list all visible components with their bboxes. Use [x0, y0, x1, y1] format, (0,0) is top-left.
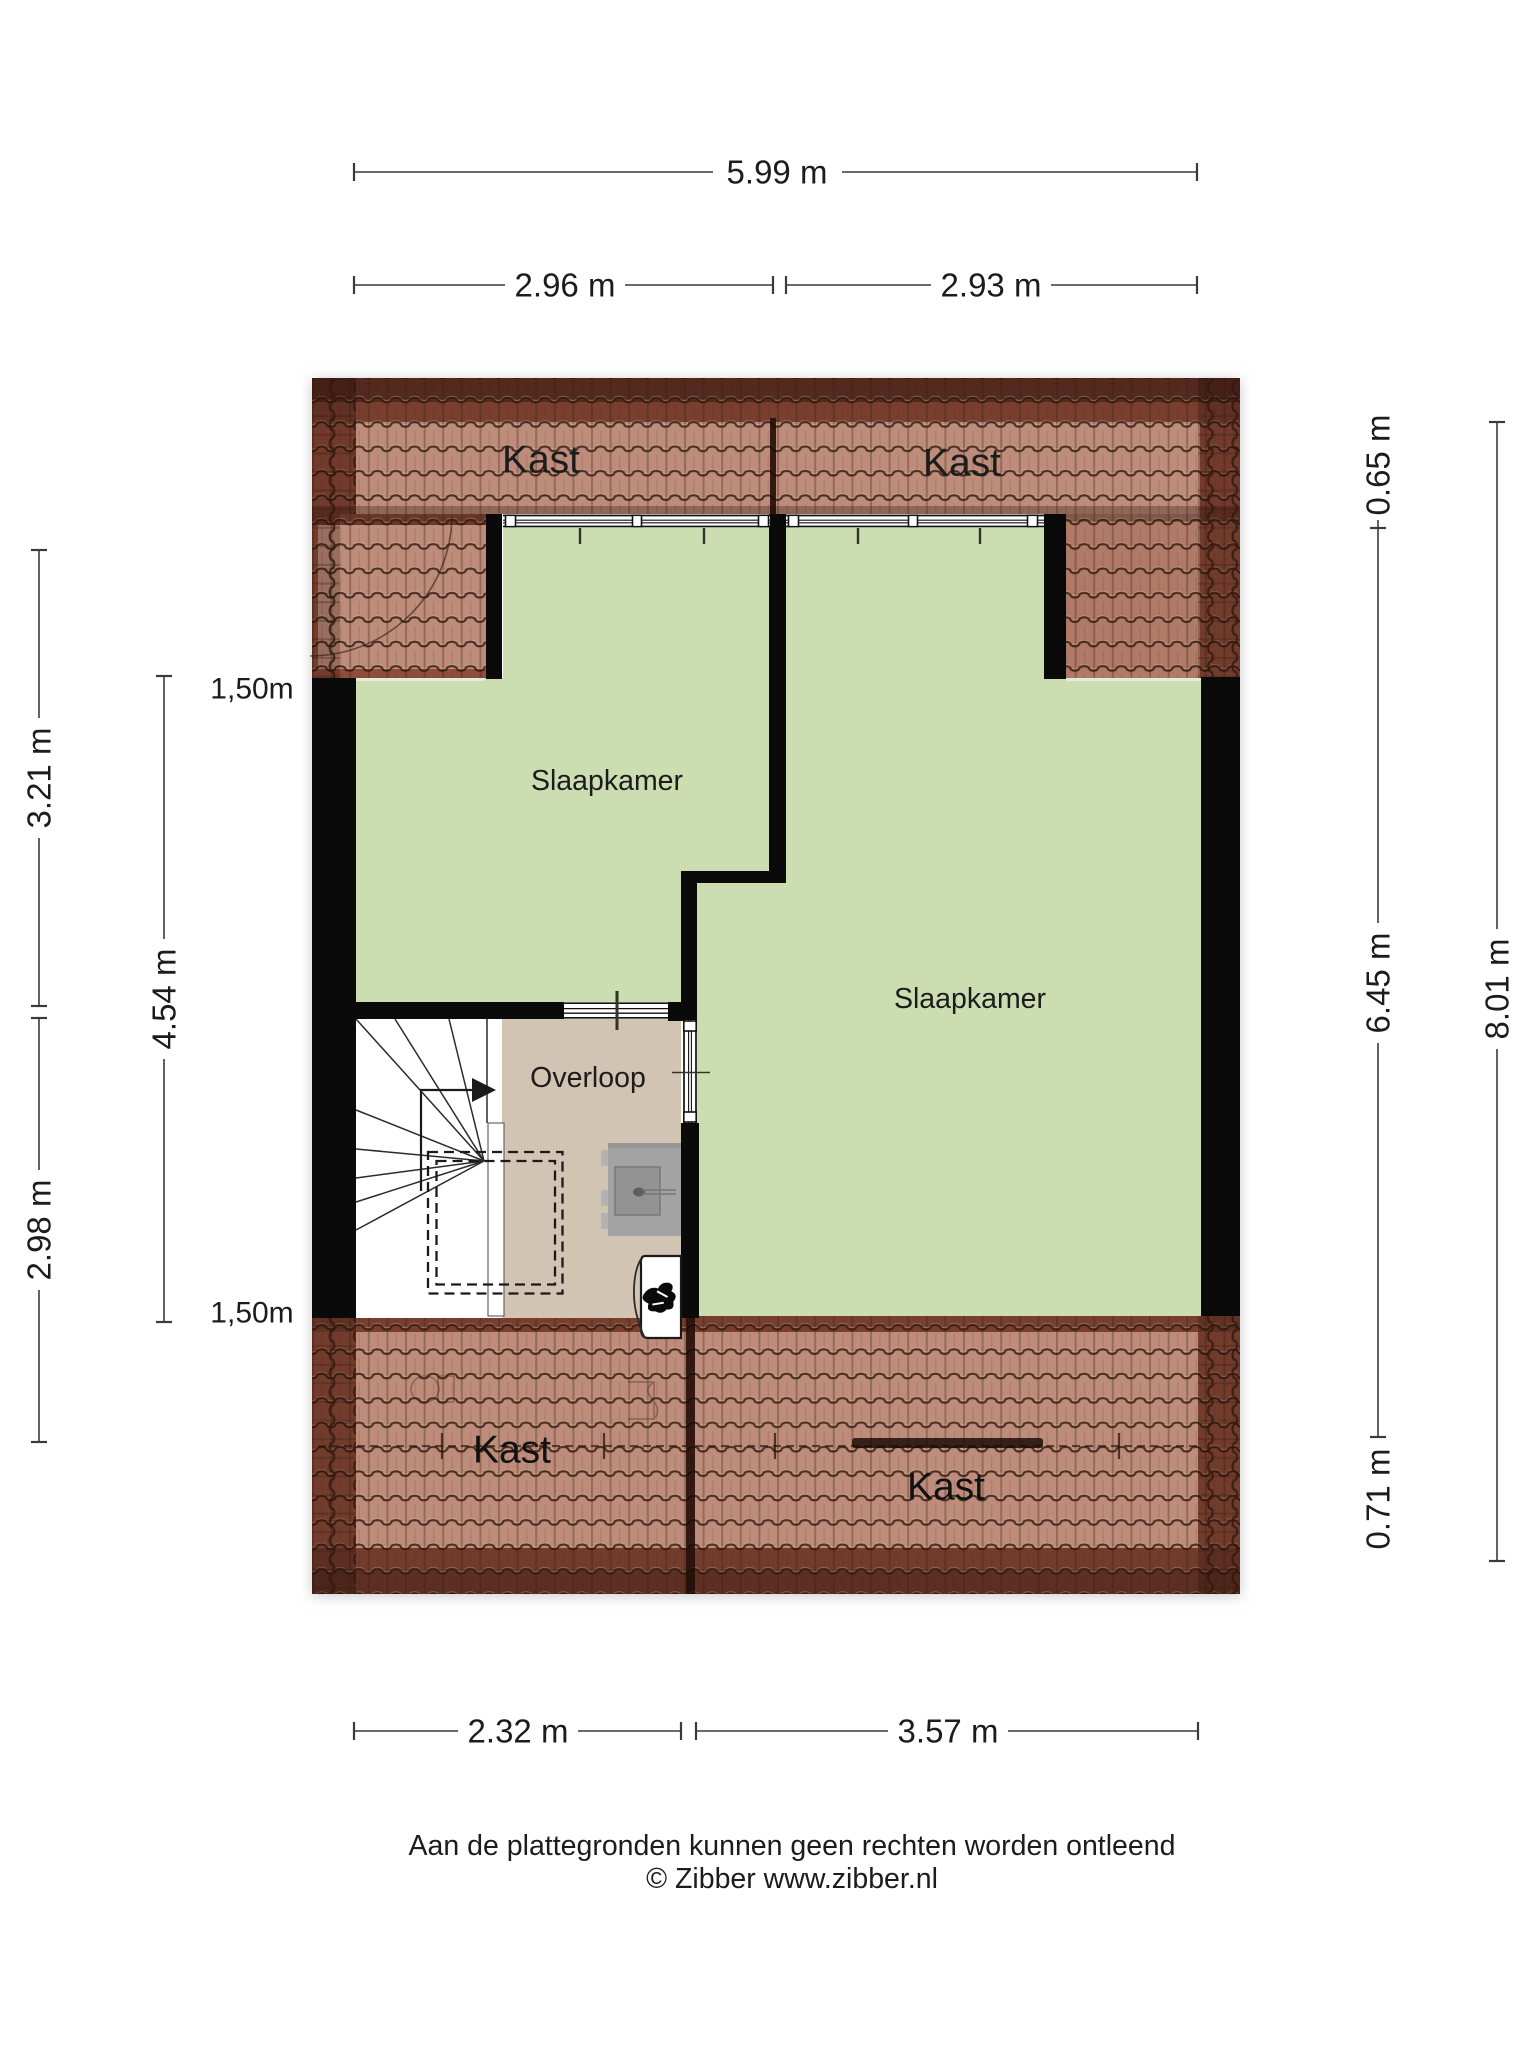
- svg-text:4.54 m: 4.54 m: [146, 949, 183, 1050]
- svg-text:1,50m: 1,50m: [210, 1297, 293, 1330]
- svg-text:0.71 m: 0.71 m: [1360, 1449, 1397, 1550]
- svg-text:Overloop: Overloop: [530, 1062, 646, 1094]
- svg-text:Aan de plattegronden kunnen ge: Aan de plattegronden kunnen geen rechten…: [409, 1830, 1176, 1862]
- svg-text:3.57 m: 3.57 m: [898, 1713, 999, 1750]
- svg-text:Kast: Kast: [907, 1466, 985, 1509]
- svg-text:2.32 m: 2.32 m: [468, 1713, 569, 1750]
- svg-text:0.65 m: 0.65 m: [1360, 415, 1397, 516]
- svg-text:2.93 m: 2.93 m: [941, 267, 1042, 304]
- svg-text:3.21 m: 3.21 m: [21, 728, 58, 829]
- svg-text:6.45 m: 6.45 m: [1360, 933, 1397, 1034]
- svg-text:1,50m: 1,50m: [210, 673, 293, 706]
- svg-text:8.01 m: 8.01 m: [1479, 939, 1516, 1040]
- svg-text:2.96 m: 2.96 m: [515, 267, 616, 304]
- svg-text:© Zibber www.zibber.nl: © Zibber www.zibber.nl: [646, 1863, 938, 1895]
- svg-text:Slaapkamer: Slaapkamer: [894, 983, 1047, 1015]
- svg-text:2.98 m: 2.98 m: [21, 1180, 58, 1281]
- svg-text:Kast: Kast: [923, 442, 1001, 485]
- svg-text:Kast: Kast: [502, 439, 580, 482]
- svg-text:Slaapkamer: Slaapkamer: [531, 765, 684, 797]
- svg-text:5.99 m: 5.99 m: [727, 154, 828, 191]
- svg-text:Kast: Kast: [473, 1429, 551, 1472]
